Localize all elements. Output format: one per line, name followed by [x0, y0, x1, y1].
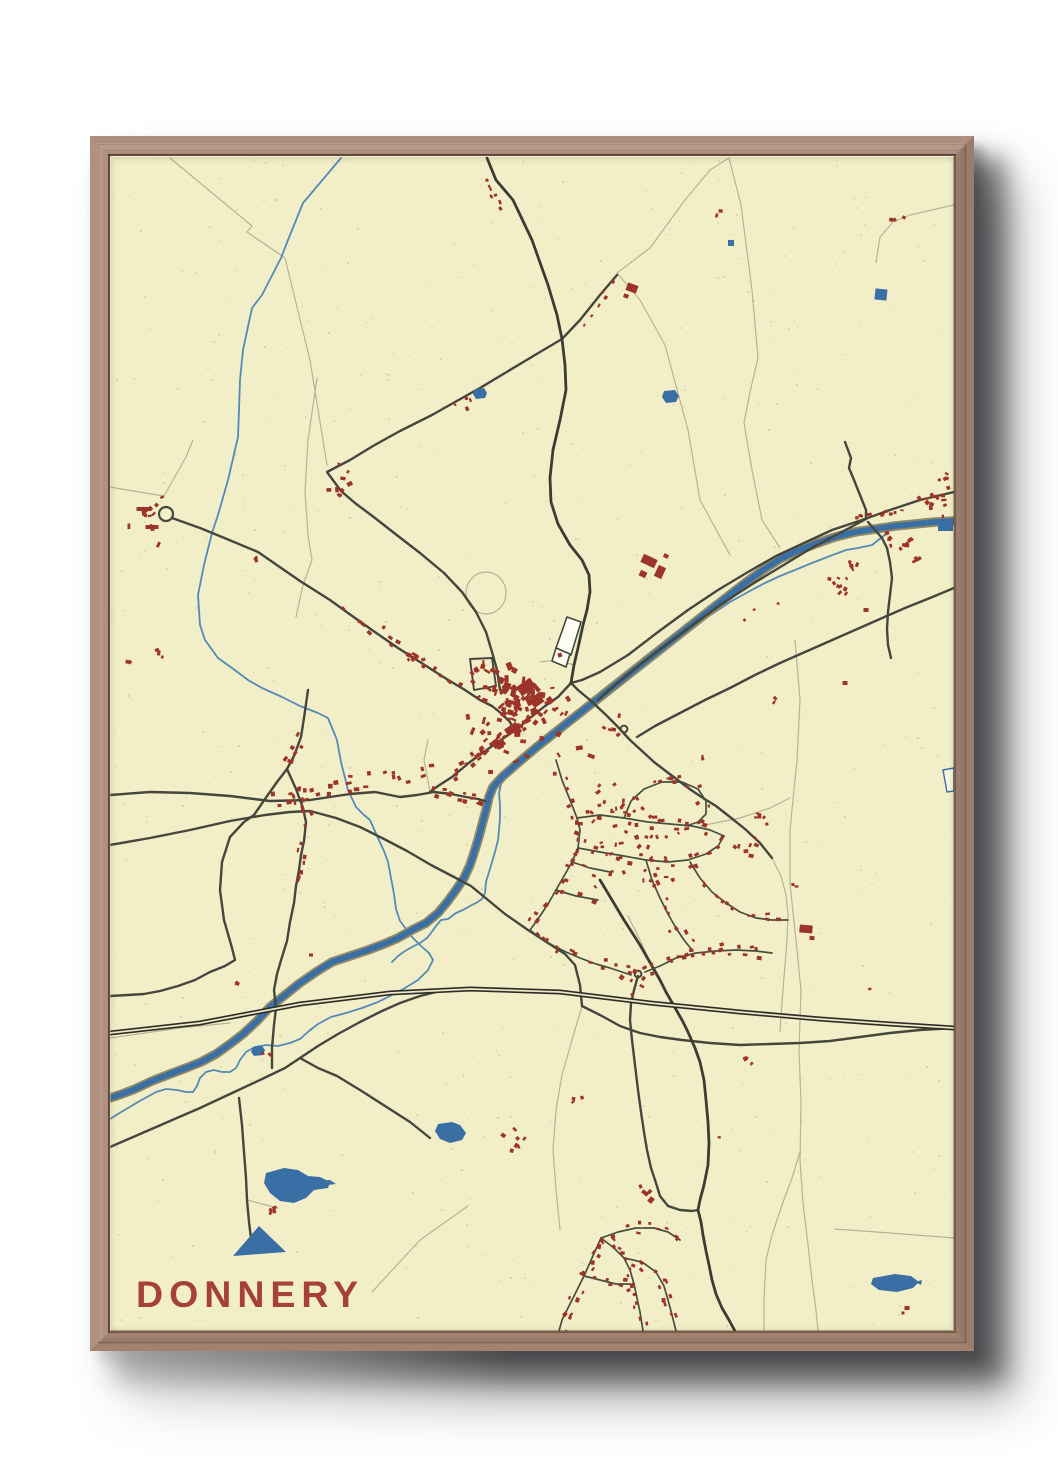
svg-text:DONNERY: DONNERY	[136, 1273, 364, 1315]
